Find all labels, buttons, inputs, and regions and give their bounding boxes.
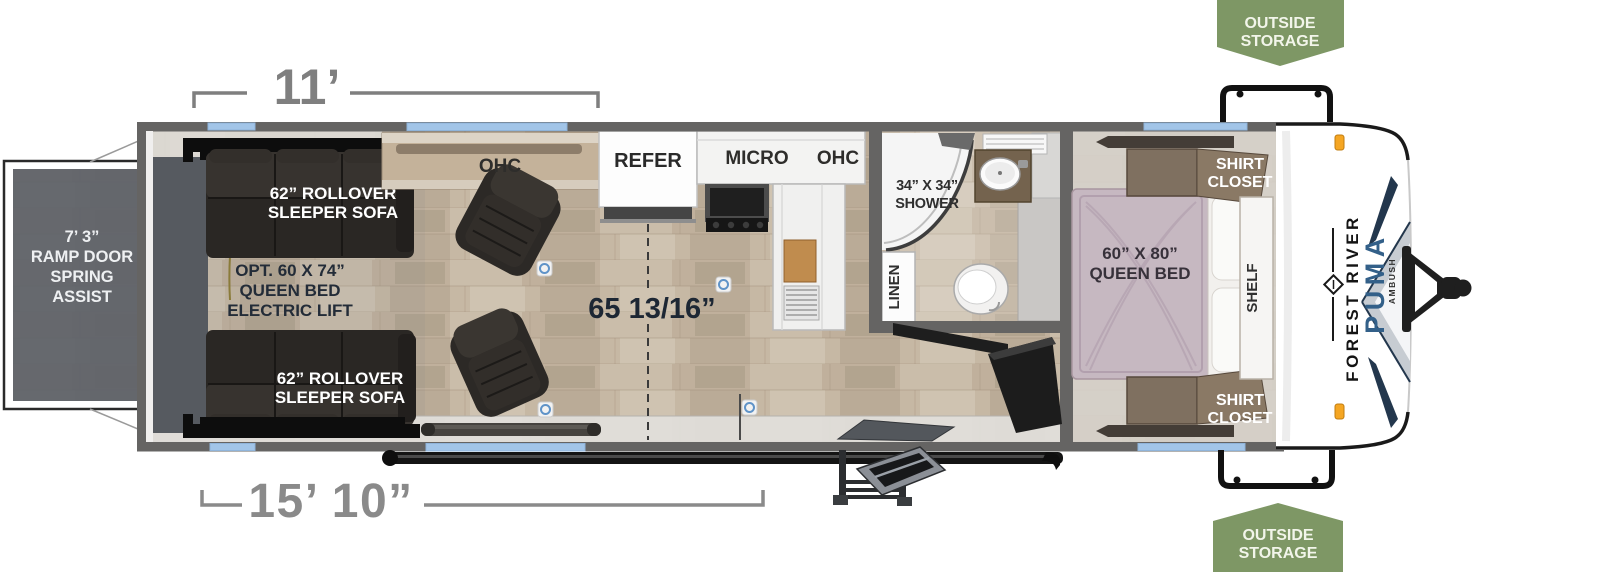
svg-text:STORAGE: STORAGE bbox=[1241, 33, 1320, 50]
svg-text:OHC: OHC bbox=[479, 156, 522, 177]
svg-text:62” ROLLOVER: 62” ROLLOVER bbox=[277, 369, 404, 388]
svg-text:ELECTRIC LIFT: ELECTRIC LIFT bbox=[227, 301, 353, 320]
svg-text:SHIRT: SHIRT bbox=[1216, 156, 1264, 173]
svg-text:60” X 80”: 60” X 80” bbox=[1102, 244, 1178, 263]
svg-text:OUTSIDE: OUTSIDE bbox=[1244, 15, 1315, 32]
svg-text:SLEEPER SOFA: SLEEPER SOFA bbox=[275, 388, 405, 407]
svg-text:CLOSET: CLOSET bbox=[1208, 410, 1273, 427]
svg-text:ASSIST: ASSIST bbox=[52, 288, 112, 306]
svg-text:OHC: OHC bbox=[817, 148, 860, 169]
svg-text:7’ 3”: 7’ 3” bbox=[65, 228, 100, 246]
svg-text:SPRING: SPRING bbox=[50, 268, 113, 286]
svg-text:LINEN: LINEN bbox=[886, 265, 903, 310]
svg-text:SHIRT: SHIRT bbox=[1216, 392, 1264, 409]
svg-text:RAMP DOOR: RAMP DOOR bbox=[31, 248, 133, 266]
svg-text:OUTSIDE: OUTSIDE bbox=[1242, 527, 1313, 544]
svg-text:PUMA: PUMA bbox=[1360, 232, 1390, 334]
svg-text:62” ROLLOVER: 62” ROLLOVER bbox=[270, 184, 397, 203]
svg-text:STORAGE: STORAGE bbox=[1239, 545, 1318, 562]
svg-text:OPT. 60 X 74”: OPT. 60 X 74” bbox=[235, 261, 345, 280]
svg-text:11’: 11’ bbox=[274, 59, 341, 115]
svg-text:65 13/16”: 65 13/16” bbox=[588, 293, 715, 325]
svg-text:34” X 34”: 34” X 34” bbox=[896, 178, 958, 194]
svg-text:SLEEPER SOFA: SLEEPER SOFA bbox=[268, 203, 398, 222]
svg-text:15’ 10”: 15’ 10” bbox=[248, 475, 413, 528]
svg-text:QUEEN BED: QUEEN BED bbox=[1089, 264, 1190, 283]
svg-text:SHELF: SHELF bbox=[1244, 263, 1261, 312]
svg-text:MICRO: MICRO bbox=[725, 148, 788, 169]
svg-text:CLOSET: CLOSET bbox=[1208, 174, 1273, 191]
svg-text:SHOWER: SHOWER bbox=[895, 196, 959, 212]
svg-text:AMBUSH: AMBUSH bbox=[1387, 258, 1397, 304]
svg-text:QUEEN BED: QUEEN BED bbox=[239, 281, 340, 300]
svg-text:REFER: REFER bbox=[614, 150, 682, 172]
